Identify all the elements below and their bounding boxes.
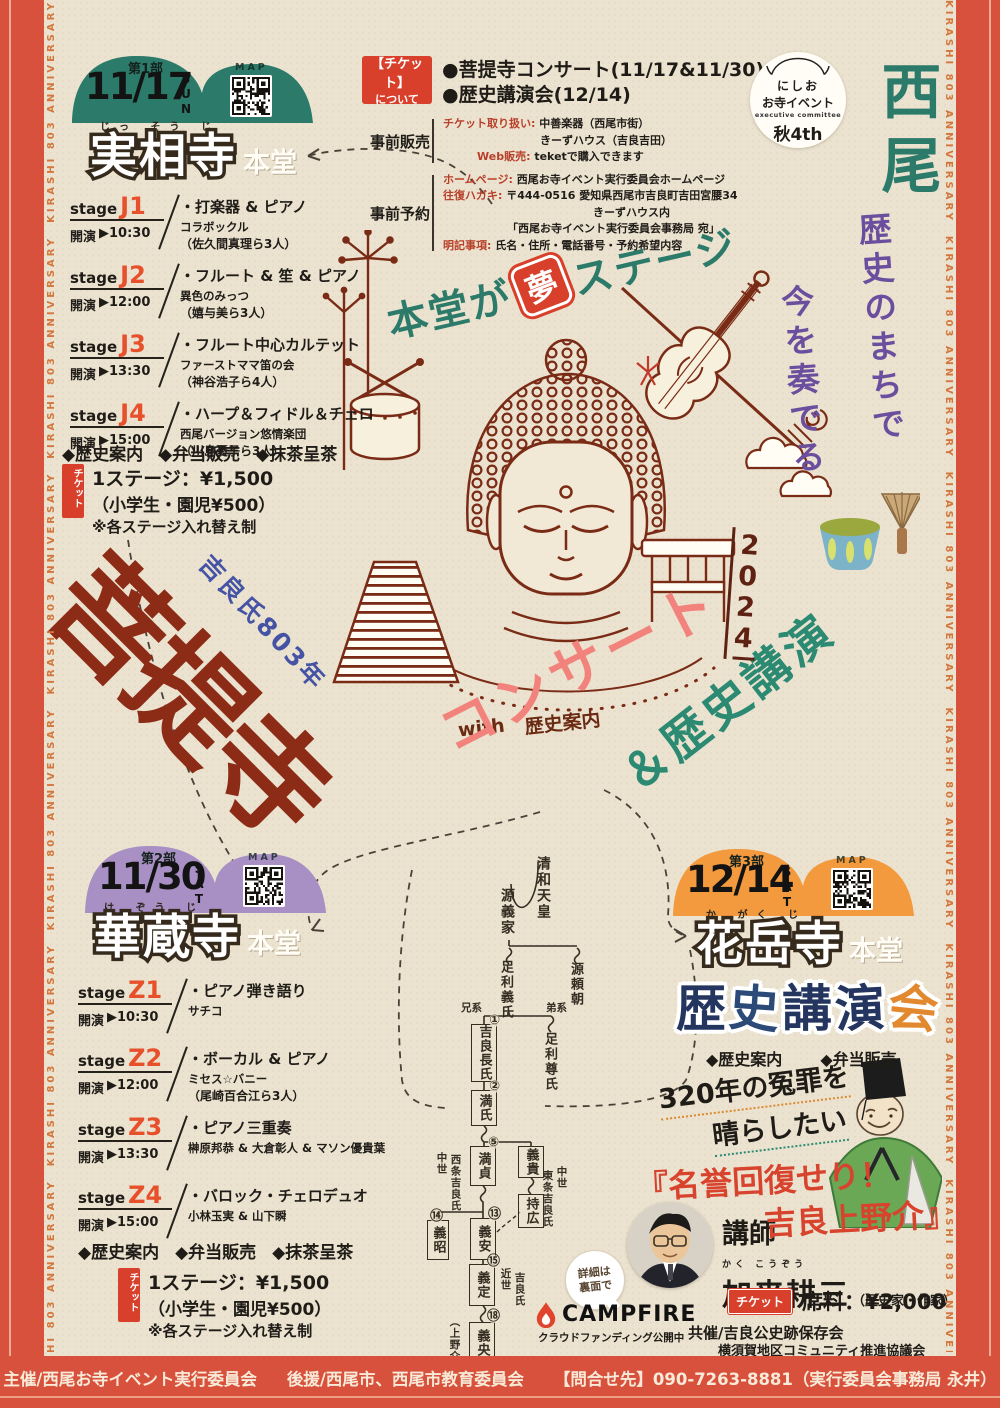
genealogy-number-5: ⑤ — [488, 1136, 499, 1149]
feature-matcha: ◆抹茶呈茶 — [272, 1238, 353, 1263]
stage-label: stage — [70, 200, 117, 218]
temple-roof-icon — [766, 55, 830, 77]
curtain-time: ▶10:30 — [99, 226, 150, 245]
campfire-brand: CAMPFIRE — [562, 1302, 696, 1327]
genealogy-number-2: ② — [489, 1080, 500, 1093]
stage-label: stage — [78, 984, 125, 1002]
stage-label: stage — [70, 269, 117, 287]
genealogy-modern-era-label: 近世 — [500, 1268, 511, 1294]
genealogy-box-osauji: 吉良長氏 — [471, 1024, 497, 1082]
reserve-key: 明記事項: — [443, 239, 491, 252]
stage-genre: ・フルート中心カルテット — [180, 334, 360, 355]
genealogy-west-era-label: 中世 — [436, 1152, 447, 1178]
stage-group: ミセス☆バニー — [188, 1071, 330, 1087]
ticket-about-line2: について — [362, 91, 432, 107]
stage-number: Z1 — [128, 980, 162, 1002]
genealogy-box-yoshitaka: 義貴 — [518, 1146, 544, 1178]
genealogy-box-mitsuuji: 満氏 — [471, 1090, 497, 1126]
presale-key: Web販売: — [477, 150, 530, 163]
part2-temple-heading: け ぞう じ 華蔵寺 本堂 — [94, 899, 301, 961]
border-inner-line — [989, 0, 991, 1408]
part1-date: 11/17 — [85, 68, 192, 105]
stage-genre: ・打楽器 & ピアノ — [180, 196, 307, 217]
genealogy-number-15: ⑮ — [487, 1255, 500, 1268]
stage-group: ファーストママ笛の会 — [180, 357, 360, 373]
tea-whisk-icon — [882, 492, 920, 554]
feature-bento: ◆弁当販売 — [175, 1238, 256, 1263]
badge-nishio: にしお — [777, 77, 819, 94]
stage-label: stage — [78, 1121, 125, 1139]
stage-row: stage J1 開演 ▶10:30 ・打楽器 & ピアノ コラボックル （佐久… — [70, 196, 385, 252]
part2-features: ◆歴史案内 ◆弁当販売 ◆抹茶呈茶 — [78, 1238, 353, 1263]
stage-group: コラボックル — [180, 219, 307, 235]
price-line1: 1ステージ：¥1,500 — [92, 464, 275, 491]
history-lecture-title: 歴 史 講 演 会 — [676, 984, 938, 1034]
genealogy-ashikaga-takauji: 足利尊氏 — [543, 1032, 556, 1090]
feature-history-guide: ◆歴史案内 — [78, 1238, 159, 1263]
price-line2: （小学生・園児¥500） — [148, 1295, 331, 1320]
genealogy-ashikaga-yoshiuji: 足利義氏 — [499, 960, 512, 1016]
stage-number: Z3 — [128, 1117, 162, 1139]
part3-temple-heading: か がく じ 花岳寺 本堂 — [696, 906, 903, 968]
genealogy-west-branch-label: 西条吉良氏 — [450, 1154, 461, 1212]
badge-committee: executive committee — [755, 111, 841, 119]
genealogy-number-14: ⑭ — [430, 1210, 443, 1223]
reserve-label: 事前予約 — [370, 172, 432, 255]
anniversary-text: KIRASHI 803 ANNIVERSARY KIRASHI 803 ANNI… — [44, 0, 60, 1352]
lecture-ticket-row: チケット 席料：¥2,000 — [728, 1286, 946, 1316]
nishio-logo: 西尾 — [876, 60, 936, 208]
arrowhead-kagakuji — [674, 929, 686, 942]
genealogy-box-yoshiaki: 義昭 — [427, 1220, 449, 1260]
temple-name-kagakuji: 花岳寺 — [696, 921, 843, 968]
ticket-badge: チケット — [118, 1268, 140, 1322]
stage-number: J3 — [120, 334, 146, 356]
stage-number: J4 — [120, 403, 146, 425]
left-red-border — [0, 0, 44, 1408]
stage-members: （嬉与美ら3人） — [180, 304, 361, 321]
seat-price: 席料：¥2,000 — [802, 1286, 946, 1316]
stage-row: stage Z2 開演 ▶12:00 ・ボーカル & ピアノ ミセス☆バニー （… — [78, 1048, 393, 1104]
presale-details: チケット取り扱い: 中善楽器（西尾市街） きーずハウス（吉良吉田） Web販売:… — [443, 116, 672, 166]
stage-row: stage Z4 開演 ▶15:00 ・バロック・チェロデュオ 小林玉実 & 山… — [78, 1185, 393, 1240]
badge-event: お寺イベント — [762, 94, 834, 111]
stage-row: stage J3 開演 ▶13:30 ・フルート中心カルテット ファーストママ笛… — [70, 334, 385, 390]
genealogy-box-mitsusada: 満貞 — [470, 1146, 496, 1186]
footer-bar: 主催/西尾お寺イベント実行委員会 後援/西尾市、西尾市教育委員会 【問合せ先】0… — [0, 1356, 1000, 1408]
xylophone-icon — [334, 562, 458, 682]
temple-name-kezoji: 華蔵寺 — [94, 914, 241, 961]
qr-code-kagakuji — [831, 868, 873, 910]
curtain-time: ▶12:00 — [99, 295, 150, 314]
stage-label: stage — [70, 407, 117, 425]
reserve-key: ホームページ: — [443, 173, 513, 186]
part3-date: 12/14 — [686, 861, 793, 898]
genealogy-number-13: ⑬ — [488, 1208, 501, 1221]
qr-code-jissoji — [230, 75, 272, 117]
ticket-about-line1: 【チケット】 — [362, 53, 432, 91]
stage-number: J2 — [120, 265, 146, 287]
part1-day: SUN — [179, 72, 193, 117]
part3-day: SAT — [780, 865, 794, 910]
ticket-badge: チケット — [62, 464, 84, 518]
anniversary-text: KIRASHI 803 ANNIVERSARY KIRASHI 803 ANNI… — [940, 0, 956, 1352]
presale-value: きーずハウス（吉良吉田） — [540, 134, 672, 147]
part2-ticket-block: チケット 1ステージ：¥1,500 （小学生・園児¥500） ※各ステージ入れ替… — [118, 1268, 331, 1341]
stage-label: stage — [78, 1189, 125, 1207]
stage-group: 異色のみっつ — [180, 288, 361, 304]
genealogy-minamoto-yoritomo: 源頼朝 — [569, 962, 582, 1010]
stage-members: （尾崎百合江ら3人） — [188, 1087, 330, 1104]
arrowhead-left-top — [308, 149, 320, 160]
event-committee-badge: にしお お寺イベント executive committee 秋4th — [750, 52, 846, 148]
part1-temple-heading: じっ そう じ 実相寺 本堂 — [90, 118, 297, 180]
genealogy-east-branch-label: 東条吉良氏 — [542, 1170, 553, 1228]
curtain-time: ▶15:00 — [107, 1215, 158, 1234]
curtain-label: 開演 — [70, 226, 96, 245]
genealogy-modern-branch-label: 吉良氏 — [514, 1272, 525, 1310]
bubble-line2: 裏面で — [579, 1278, 613, 1296]
part2-stage-list: stage Z1 開演 ▶10:30 ・ピアノ弾き語り サチコ stage Z2… — [78, 980, 393, 1253]
campfire-flame-icon — [536, 1300, 556, 1328]
genealogy-seiwa-tenno: 清和天皇 — [536, 856, 550, 928]
genealogy-east-era-label: 中世 — [556, 1166, 567, 1192]
footer-divider-line — [0, 1396, 1000, 1398]
arrowhead-kezoji — [312, 919, 324, 931]
price-line1: 1ステージ：¥1,500 — [148, 1268, 331, 1295]
price-line3: ※各ステージ入れ替え制 — [148, 1320, 331, 1341]
map-label: MAP — [235, 62, 268, 73]
feature-history-guide: ◆歴史案内 — [62, 440, 143, 465]
curtain-label: 開演 — [78, 1078, 104, 1097]
curtain-label: 開演 — [70, 295, 96, 314]
stage-row: stage Z3 開演 ▶13:30 ・ピアノ三重奏 榊原邦恭 & 大倉彰人 &… — [78, 1117, 393, 1172]
crowdfunding-caption: クラウドファンディング公開中 — [538, 1330, 684, 1345]
stage-label: stage — [78, 1052, 125, 1070]
part1-features: ◆歴史案内 ◆弁当販売 ◆抹茶呈茶 — [62, 440, 337, 465]
curtain-time: ▶10:30 — [107, 1010, 158, 1029]
campfire-brand-row: CAMPFIRE — [536, 1300, 696, 1328]
hall-label: 本堂 — [849, 938, 903, 965]
curtain-time: ▶13:30 — [107, 1147, 158, 1166]
stage-group: サチコ — [188, 1003, 307, 1019]
stage-genre: ・ピアノ三重奏 — [188, 1117, 385, 1138]
bullet-concert: ●菩提寺コンサート(11/17&11/30) — [442, 58, 764, 83]
stage-group: 榊原邦恭 & 大倉彰人 & マソン優貴葉 — [188, 1140, 385, 1156]
genealogy-box-yoshisada: 義定 — [469, 1264, 495, 1306]
reserve-value: きーずハウス内 — [593, 206, 670, 219]
ticket-badge: チケット — [728, 1289, 792, 1314]
border-inner-line — [9, 0, 11, 1408]
genealogy-frame-left — [399, 870, 445, 1108]
genealogy-younger-line-label: 弟系 — [546, 1000, 567, 1015]
footer-contact: 【問合せ先】090-7263-8881（実行委員会事務局 永井） — [554, 1366, 997, 1390]
curtain-label: 開演 — [70, 364, 96, 383]
reserve-key: 往復ハガキ: — [443, 189, 502, 202]
stage-row: stage Z1 開演 ▶10:30 ・ピアノ弾き語り サチコ — [78, 980, 393, 1035]
presale-value: 中善楽器（西尾市街） — [539, 117, 649, 130]
hall-label: 本堂 — [247, 931, 301, 958]
divider — [432, 119, 434, 163]
curtain-label: 開演 — [78, 1215, 104, 1234]
temple-name-jissoji: 実相寺 — [90, 133, 237, 180]
matcha-bowl-icon — [820, 518, 880, 570]
genealogy-minamoto-yoshiie: 源義家 — [500, 888, 514, 944]
footer-support: 後援/西尾市、西尾市教育委員会 — [287, 1366, 524, 1390]
title-bodaiji: 菩提寺 — [29, 538, 346, 855]
divider — [432, 175, 434, 252]
stage-group: 小林玉実 & 山下瞬 — [188, 1208, 368, 1224]
right-red-border — [956, 0, 1000, 1408]
stage-members: （佐久間真理ら3人） — [180, 235, 307, 252]
stage-members: （神谷浩子ら4人） — [180, 373, 360, 390]
reserve-value: 西尾お寺イベント実行委員会ホームページ — [517, 173, 725, 186]
stage-genre: ・バロック・チェロデュオ — [188, 1185, 368, 1206]
lecturer-photo — [627, 1202, 713, 1288]
stage-genre: ・ボーカル & ピアノ — [188, 1048, 330, 1069]
presale-key: チケット取り扱い: — [443, 117, 535, 130]
part1-stage-list: stage J1 開演 ▶10:30 ・打楽器 & ピアノ コラボックル （佐久… — [70, 196, 385, 472]
hall-label: 本堂 — [243, 150, 297, 177]
stage-genre: ・フルート & 笙 & ピアノ — [180, 265, 361, 286]
footer-organizer: 主催/西尾お寺イベント実行委員会 — [3, 1366, 257, 1390]
map-label: MAP — [836, 855, 869, 866]
part1-ticket-block: チケット 1ステージ：¥1,500 （小学生・園児¥500） ※各ステージ入れ替… — [62, 464, 275, 537]
genealogy-box-mochihiro: 持広 — [518, 1194, 544, 1228]
lecturer-portrait-icon — [627, 1202, 713, 1288]
right-anniversary-strip: KIRASHI 803 ANNIVERSARY KIRASHI 803 ANNI… — [940, 0, 956, 1352]
stage-number: Z4 — [128, 1185, 162, 1207]
genealogy-number-1: ① — [489, 1014, 500, 1027]
genealogy-number-18: ⑱ — [487, 1310, 500, 1323]
dream-badge: 夢 — [508, 252, 575, 319]
part2-date: 11/30 — [98, 858, 205, 895]
event-bullets: ●菩提寺コンサート(11/17&11/30) ●歴史講演会(12/14) — [442, 56, 764, 107]
genealogy-elder-line-label: 兄系 — [461, 1000, 482, 1015]
stage-number: Z2 — [128, 1048, 162, 1070]
curtain-label: 開演 — [78, 1010, 104, 1029]
stage-row: stage J2 開演 ▶12:00 ・フルート & 笙 & ピアノ 異色のみっ… — [70, 265, 385, 321]
stage-genre: ・ハープ＆フィドル＆チェロ — [180, 403, 374, 424]
stage-label: stage — [70, 338, 117, 356]
curtain-label: 開演 — [78, 1147, 104, 1166]
stage-genre: ・ピアノ弾き語り — [188, 980, 307, 1001]
lecturer-kana: かく こうぞう — [722, 1257, 956, 1270]
curtain-time: ▶13:30 — [99, 364, 150, 383]
part1-date-arch: 第1部 11/17 SUN MAP — [72, 53, 313, 123]
left-anniversary-strip: KIRASHI 803 ANNIVERSARY KIRASHI 803 ANNI… — [44, 0, 60, 1352]
bullet-lecture: ●歴史講演会(12/14) — [442, 83, 764, 108]
stage-number: J1 — [120, 196, 146, 218]
ticket-about-badge: 【チケット】 について — [362, 56, 432, 104]
feature-bento: ◆弁当販売 — [159, 440, 240, 465]
reserve-value: 〒444-0516 愛知県西尾市吉良町吉田宮腰34 — [506, 189, 737, 202]
curtain-time: ▶12:00 — [107, 1078, 158, 1097]
badge-season: 秋4th — [773, 120, 822, 145]
presale-label: 事前販売 — [370, 116, 432, 166]
presale-value: teketで購入できます — [534, 150, 643, 163]
poster-page: KIRASHI 803 ANNIVERSARY KIRASHI 803 ANNI… — [0, 0, 1000, 1408]
price-line2: （小学生・園児¥500） — [92, 491, 275, 516]
feature-matcha: ◆抹茶呈茶 — [256, 440, 337, 465]
